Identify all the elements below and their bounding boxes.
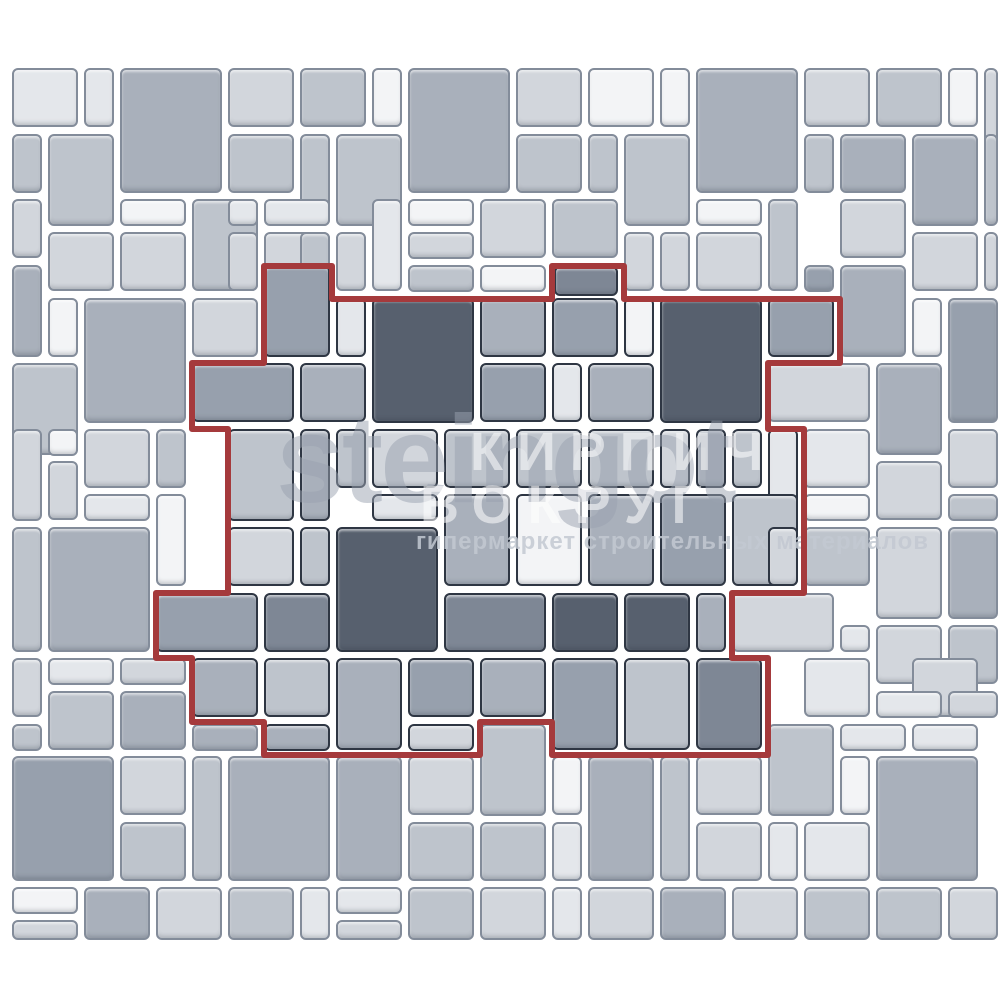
paving-tile — [804, 887, 870, 940]
paving-tile — [12, 68, 78, 127]
paving-tile — [948, 527, 998, 619]
paving-tile — [84, 887, 150, 940]
paving-tile — [840, 625, 870, 652]
paving-tile — [408, 232, 474, 259]
paving-tile — [408, 822, 474, 881]
paving-tile — [660, 887, 726, 940]
paving-tile — [228, 68, 294, 127]
paving-tiles-layer — [0, 0, 1000, 1000]
paving-tile-pattern-unit — [696, 429, 726, 488]
paving-tile — [660, 756, 690, 881]
paving-tile — [336, 887, 402, 914]
paving-tile — [48, 691, 114, 750]
paving-tile — [732, 593, 834, 652]
paving-tile — [12, 527, 42, 652]
paving-tile — [984, 134, 998, 226]
paving-tile-pattern-unit — [264, 593, 330, 652]
paving-tile-pattern-unit — [228, 429, 294, 521]
paving-tile — [480, 724, 546, 816]
paving-tile — [624, 134, 690, 226]
paving-tile — [156, 429, 186, 488]
paving-tile-pattern-unit — [624, 593, 690, 652]
paving-tile-pattern-unit — [480, 298, 546, 357]
paving-tile — [372, 68, 402, 127]
paving-tile — [84, 68, 114, 127]
paving-tile — [588, 887, 654, 940]
paving-tile — [336, 232, 366, 291]
paving-tile-pattern-unit — [300, 527, 330, 586]
paving-tile — [48, 134, 114, 226]
paving-tile — [156, 887, 222, 940]
paving-tile-pattern-unit — [552, 298, 618, 357]
paving-tile — [120, 822, 186, 881]
paving-tile-pattern-unit — [408, 658, 474, 717]
paving-tile-pattern-unit — [300, 363, 366, 422]
paving-tile — [840, 199, 906, 258]
paving-tile — [12, 199, 42, 258]
paving-tile — [696, 232, 762, 291]
paving-tile — [300, 887, 330, 940]
paving-tile-pattern-unit — [264, 724, 330, 751]
paving-tile — [12, 887, 78, 914]
paving-tile — [480, 265, 546, 292]
paving-tile — [516, 134, 582, 193]
paving-tile — [948, 494, 998, 521]
paving-tile — [948, 429, 998, 488]
paving-tile — [120, 68, 222, 193]
paving-tile-pattern-unit — [732, 429, 762, 488]
paving-tile — [48, 461, 78, 520]
paving-tile — [876, 363, 942, 455]
paving-tile — [696, 822, 762, 881]
paving-tile-pattern-unit — [516, 429, 582, 488]
paving-tile — [588, 68, 654, 127]
paving-tile — [120, 658, 186, 685]
paving-tile — [552, 822, 582, 881]
paving-tile — [588, 756, 654, 881]
paving-tile-pattern-unit — [372, 494, 438, 521]
paving-tile — [12, 265, 42, 357]
paving-tile — [732, 887, 798, 940]
paving-tile — [156, 494, 186, 586]
paving-tile-pattern-unit — [192, 363, 294, 422]
paving-tile — [84, 494, 150, 521]
paving-tile — [804, 658, 870, 717]
paving-tile-pattern-unit — [696, 593, 726, 652]
paving-tile — [768, 724, 834, 816]
paving-tile-pattern-unit — [696, 658, 762, 750]
paving-tile-pattern-unit — [552, 658, 618, 750]
paving-tile — [480, 887, 546, 940]
paving-tile — [804, 265, 834, 292]
paving-tile-pattern-unit — [408, 724, 474, 751]
paving-tile — [948, 68, 978, 127]
paving-tile — [840, 265, 906, 357]
paving-tile — [516, 68, 582, 127]
paving-tile-pattern-unit — [264, 265, 330, 357]
paving-tile — [372, 199, 402, 291]
paving-tile — [588, 134, 618, 193]
paving-tile — [624, 232, 654, 291]
paving-tile-pattern-unit — [444, 429, 510, 488]
paving-tile — [264, 199, 330, 226]
paving-tile-pattern-unit — [660, 429, 690, 488]
paving-tile-pattern-unit — [300, 429, 330, 521]
paving-tile — [120, 691, 186, 750]
paving-tile — [120, 756, 186, 815]
paving-tile — [120, 232, 186, 291]
paving-tile — [12, 724, 42, 751]
paving-tile — [84, 429, 150, 488]
paving-tile — [660, 68, 690, 127]
paving-tile — [408, 68, 510, 193]
paving-tile — [48, 527, 150, 652]
paving-tile — [192, 298, 258, 357]
paving-tile — [84, 298, 186, 423]
paving-tile — [768, 199, 798, 291]
paving-tile — [228, 232, 258, 291]
paving-tile-pattern-unit — [480, 658, 546, 717]
paving-tile — [948, 691, 998, 718]
paving-tile-pattern-unit — [192, 658, 258, 717]
paving-tile — [552, 756, 582, 815]
paving-tile — [120, 199, 186, 226]
paving-tile — [912, 134, 978, 226]
paving-tile — [48, 232, 114, 291]
paving-tile — [336, 920, 402, 940]
paving-tile — [552, 199, 618, 258]
paving-tile — [408, 756, 474, 815]
paving-tile — [12, 658, 42, 717]
paving-tile — [804, 68, 870, 127]
paving-tile-pattern-unit — [768, 527, 798, 586]
paving-tile — [696, 199, 762, 226]
paving-tile — [804, 822, 870, 881]
paving-tile-pattern-unit — [624, 298, 654, 357]
paving-tile — [804, 494, 870, 521]
paving-tile-pattern-unit — [228, 527, 294, 586]
paving-tile — [408, 199, 474, 226]
paving-tile-pattern-unit — [444, 593, 546, 652]
paving-tile — [48, 298, 78, 357]
paving-tile — [408, 887, 474, 940]
paving-tile — [192, 756, 222, 881]
paving-tile — [12, 920, 78, 940]
paving-tile-pattern-unit — [372, 429, 438, 488]
paving-tile — [876, 527, 942, 619]
paving-pattern-scheme: steingot КИРПИЧ ВОКРУГ гипермаркет строи… — [0, 0, 1000, 1000]
paving-tile-pattern-unit — [552, 593, 618, 652]
paving-tile — [876, 68, 942, 127]
paving-tile — [480, 822, 546, 881]
paving-tile — [480, 199, 546, 258]
paving-tile — [228, 199, 258, 226]
paving-tile-pattern-unit — [554, 266, 618, 296]
paving-tile — [876, 887, 942, 940]
paving-tile-pattern-unit — [552, 363, 582, 422]
paving-tile — [912, 232, 978, 291]
paving-tile — [948, 298, 998, 423]
paving-tile — [948, 887, 998, 940]
paving-tile-pattern-unit — [768, 298, 834, 357]
paving-tile — [552, 887, 582, 940]
paving-tile-pattern-unit — [336, 429, 366, 488]
paving-tile — [840, 724, 906, 751]
paving-tile-pattern-unit — [660, 298, 762, 423]
paving-tile-pattern-unit — [336, 658, 402, 750]
paving-tile — [804, 429, 870, 488]
paving-tile — [876, 691, 942, 718]
paving-tile — [228, 887, 294, 940]
paving-tile — [48, 658, 114, 685]
paving-tile-pattern-unit — [480, 363, 546, 422]
paving-tile-pattern-unit — [264, 658, 330, 717]
paving-tile-pattern-unit — [624, 658, 690, 750]
paving-tile — [984, 232, 998, 291]
paving-tile-pattern-unit — [444, 494, 510, 586]
paving-tile-pattern-unit — [660, 494, 726, 586]
paving-tile-pattern-unit — [588, 429, 654, 488]
paving-tile-pattern-unit — [588, 363, 654, 422]
paving-tile — [804, 134, 834, 193]
paving-tile — [912, 298, 942, 357]
paving-tile — [228, 134, 294, 193]
paving-tile — [768, 822, 798, 881]
paving-tile-pattern-unit — [336, 527, 438, 652]
paving-tile — [192, 724, 258, 751]
paving-tile — [228, 756, 330, 881]
paving-tile — [660, 232, 690, 291]
paving-tile-pattern-unit — [336, 298, 366, 357]
paving-tile — [336, 756, 402, 881]
paving-tile — [840, 134, 906, 193]
paving-tile — [408, 265, 474, 292]
paving-tile-pattern-unit — [588, 494, 654, 586]
paving-tile — [876, 461, 942, 520]
paving-tile — [804, 527, 870, 586]
paving-tile-pattern-unit — [372, 298, 474, 423]
paving-tile — [12, 429, 42, 521]
paving-tile — [12, 134, 42, 193]
paving-tile — [696, 68, 798, 193]
paving-tile-pattern-unit — [516, 494, 582, 586]
paving-tile-pattern-unit — [156, 593, 258, 652]
paving-tile — [696, 756, 762, 815]
paving-tile — [48, 429, 78, 456]
paving-tile — [876, 756, 978, 881]
paving-tile — [912, 724, 978, 751]
paving-tile — [12, 756, 114, 881]
paving-tile — [300, 68, 366, 127]
paving-tile — [840, 756, 870, 815]
paving-tile — [768, 363, 870, 422]
